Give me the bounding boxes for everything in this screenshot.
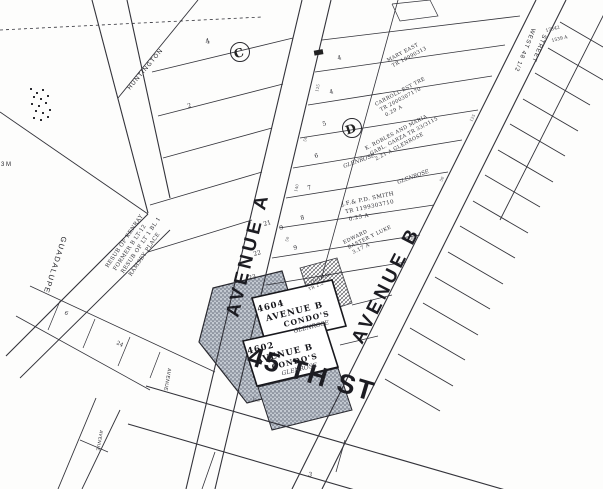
tr-note-2: 1539 A <box>551 34 569 44</box>
bottomleft-stub-line1 <box>58 398 96 489</box>
dim-label: 125 <box>252 396 261 403</box>
robles-line2: GABL. GARZA TR 33/3115 <box>369 116 439 157</box>
st45-south-line <box>128 424 520 489</box>
upperleft-street-line2 <box>127 0 170 198</box>
lot-number: 7 <box>307 184 313 192</box>
plat-map: AVENUE A AVENUE B 45 TH ST GUADALUPE HUN… <box>0 0 603 489</box>
parcel-annotations: RESUB OF KENRAY FORMER B LT-12 RESUB OF … <box>105 25 569 384</box>
south-of-45th-marks <box>80 440 345 489</box>
lot-number: 8 <box>300 214 306 222</box>
smith-parcel-text: J.F.& P.D. SMITH TR 1199303710 0.25 A <box>340 191 398 224</box>
topright-small-lot <box>392 0 438 21</box>
robles-parcel-text: K. ROBLES AND MARIA GABL. GARZA TR 33/31… <box>364 110 442 164</box>
baster-parcel-text: EDWARD BASTER Y LUKE 3.17 A <box>342 219 395 258</box>
guadalupe-label: GUADALUPE <box>42 235 69 295</box>
avenue-small-label-1: AVENUE <box>162 368 172 392</box>
lot-number: 6 <box>63 310 69 317</box>
lot-number: 4 <box>329 88 335 96</box>
lot-number: 5 <box>322 120 328 128</box>
lot-number: 24 <box>115 340 124 349</box>
survey-blob <box>314 49 324 55</box>
illegible-stamp <box>30 88 51 121</box>
survey-marks <box>0 0 438 56</box>
plat-map-canvas: AVENUE A AVENUE B 45 TH ST GUADALUPE HUN… <box>0 0 603 489</box>
topright-boundary-line <box>500 14 603 220</box>
lot-number: 9 <box>293 244 299 252</box>
avenue-small-label-2: AVENUE <box>95 430 104 452</box>
lot-number: 4 <box>204 37 211 46</box>
dim-label: 50 <box>284 236 290 243</box>
edge-label: 3 M <box>1 162 11 168</box>
lot-number: 22 <box>253 249 262 258</box>
mary-parcel-text: MARY EAST TR 19990313 <box>386 39 428 70</box>
lot-number: 6 <box>314 152 320 160</box>
lot-number: 21 <box>263 219 272 228</box>
resub-parcel-text: RESUB OF KENRAY FORMER B LT-12 RESUB OF … <box>105 207 169 282</box>
dim-label: 140 <box>293 183 300 192</box>
dim-label: 50 <box>438 175 445 182</box>
west-48-label-line1: WEST 48 1/2 <box>513 27 536 72</box>
block-letter-markers: C D <box>231 43 362 138</box>
dim-label: 125 <box>314 83 321 92</box>
glenrose-note-1: GLENROSE <box>343 153 376 170</box>
lot-number: 9 <box>279 224 285 232</box>
glenrose-note-2: GLENROSE <box>397 169 430 186</box>
lot-number: 4 <box>337 54 343 62</box>
lot-number: 2 <box>187 102 193 110</box>
